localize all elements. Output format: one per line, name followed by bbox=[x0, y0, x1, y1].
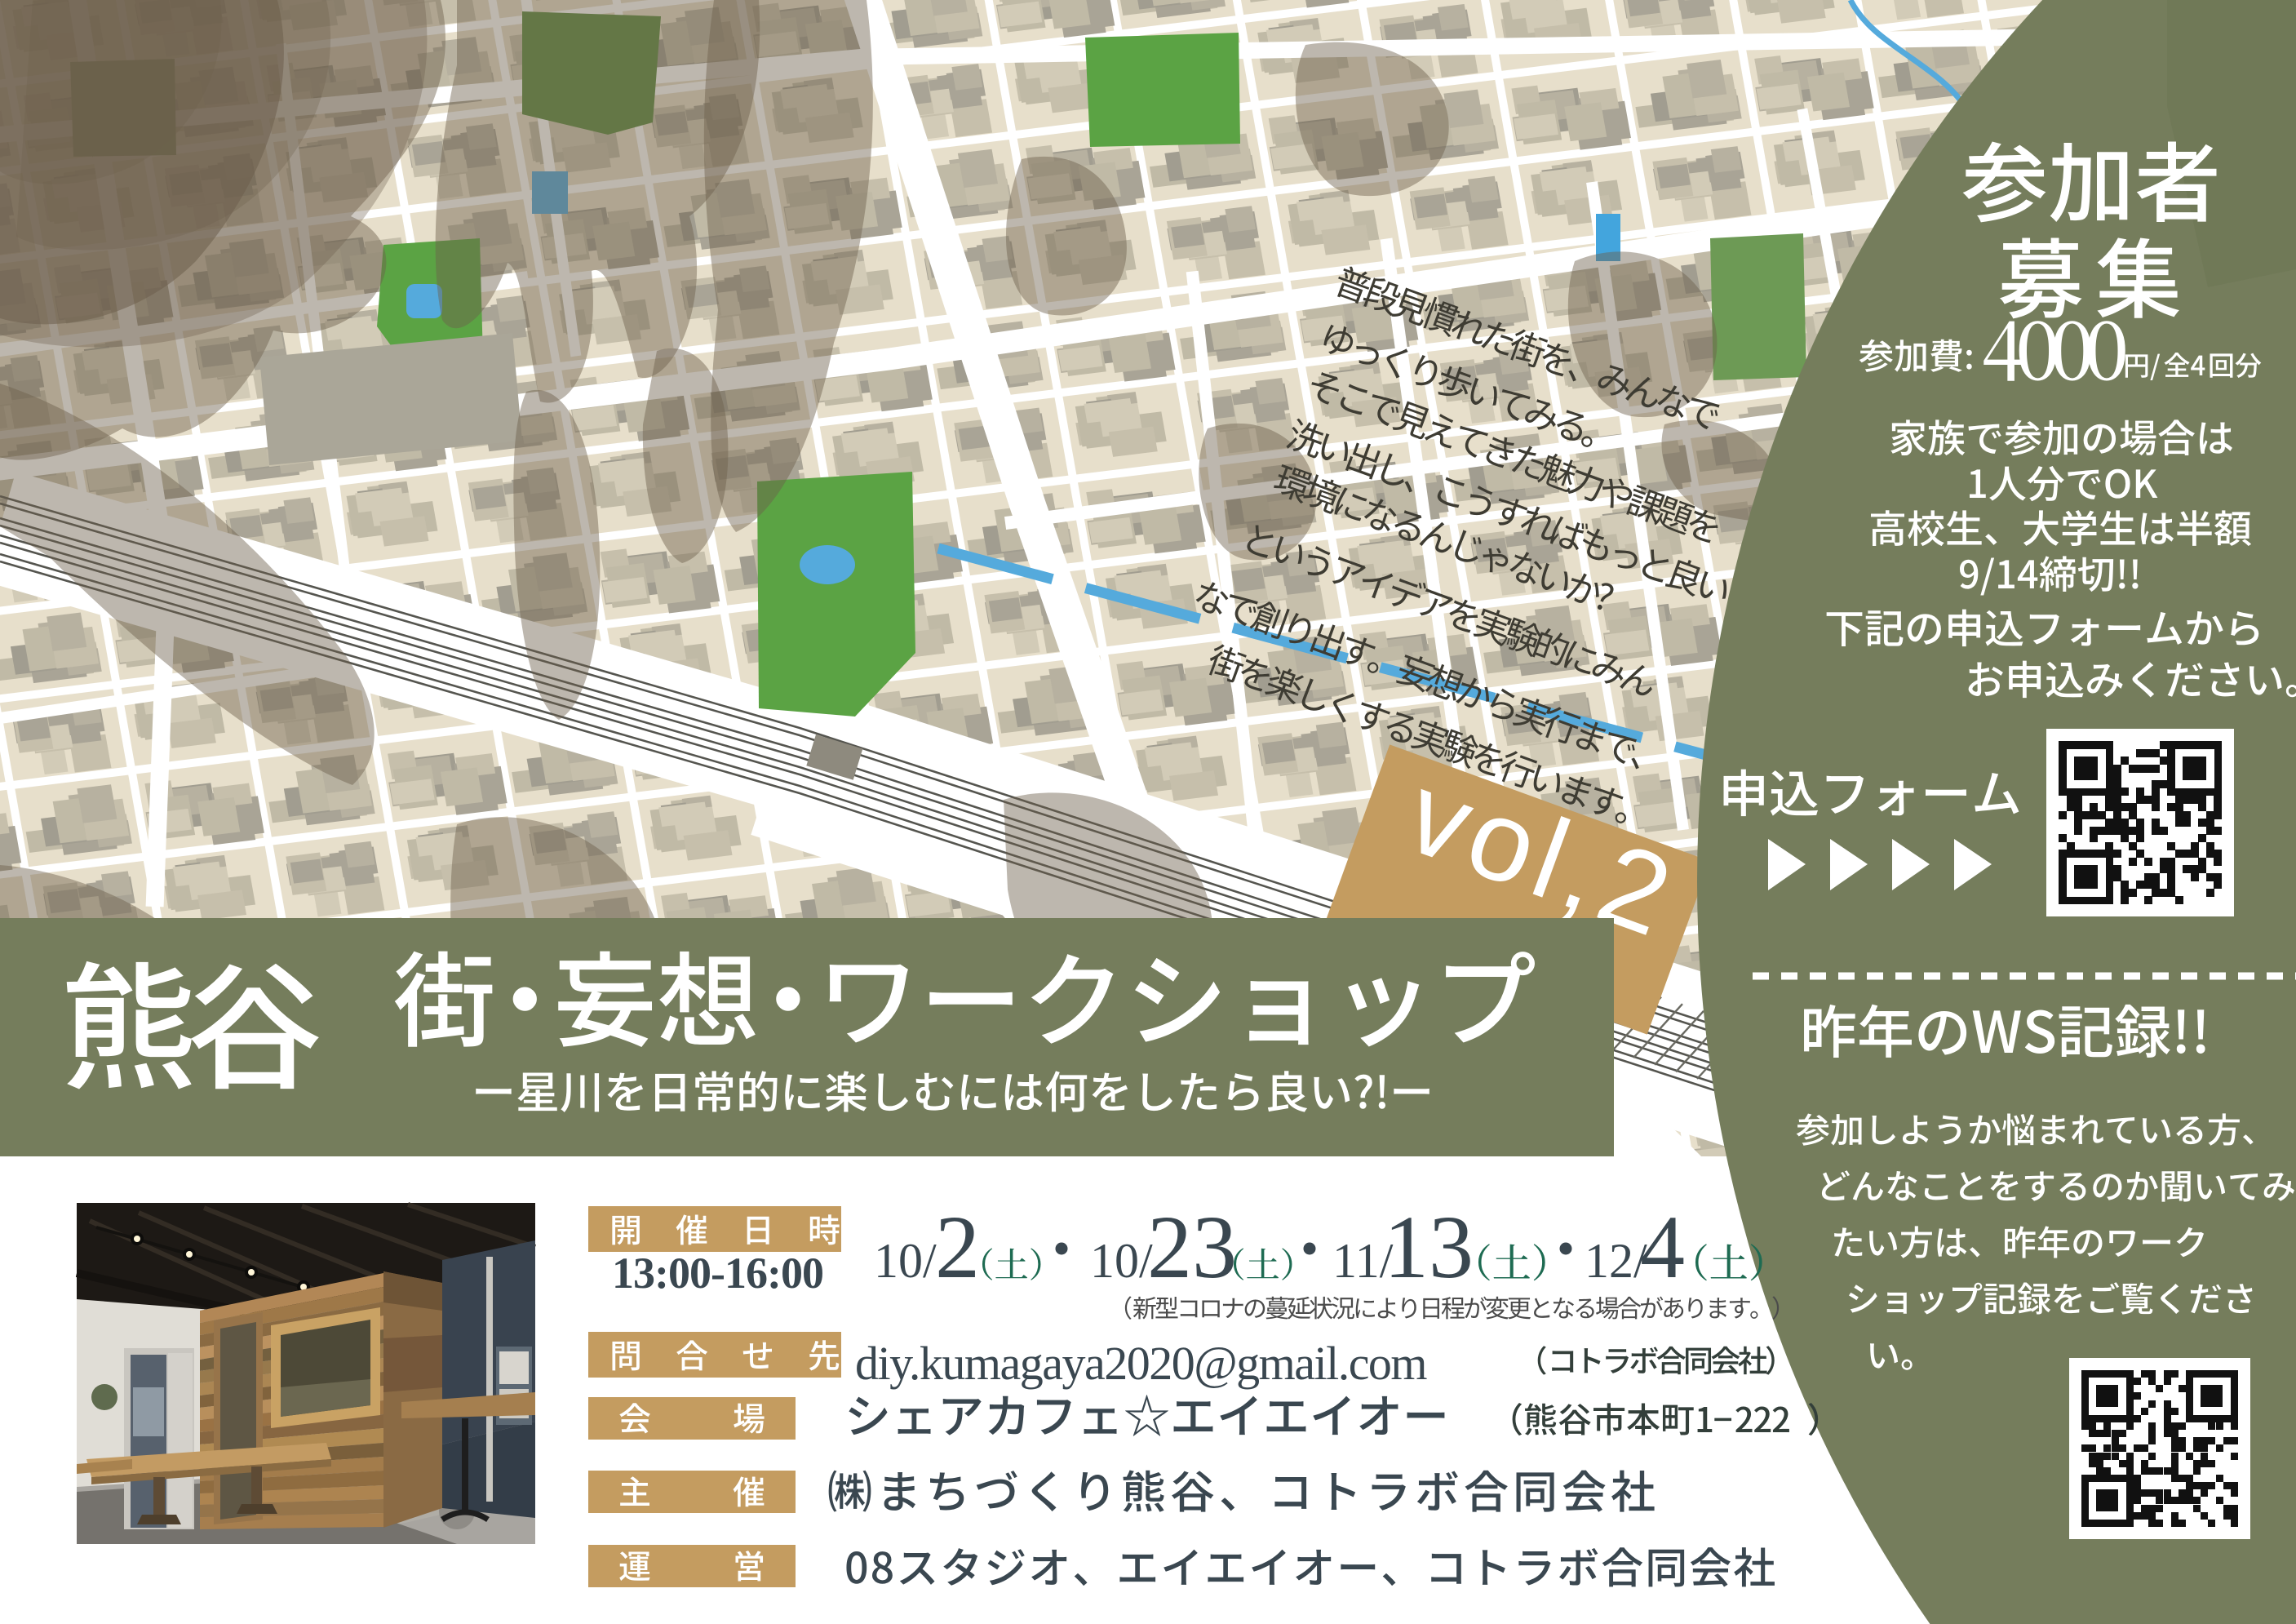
svg-text:4: 4 bbox=[1640, 1197, 1685, 1297]
svg-text:10/: 10/ bbox=[874, 1234, 937, 1288]
svg-text:2: 2 bbox=[935, 1197, 980, 1297]
svg-text:12/: 12/ bbox=[1585, 1234, 1647, 1288]
svg-text:13:00-16:00: 13:00-16:00 bbox=[612, 1249, 823, 1298]
svg-text:diy.kumagaya2020@gmail.com: diy.kumagaya2020@gmail.com bbox=[855, 1337, 1427, 1390]
svg-text:10/: 10/ bbox=[1090, 1234, 1153, 1288]
svg-text:23: 23 bbox=[1147, 1197, 1237, 1297]
svg-text:13: 13 bbox=[1384, 1197, 1474, 1297]
